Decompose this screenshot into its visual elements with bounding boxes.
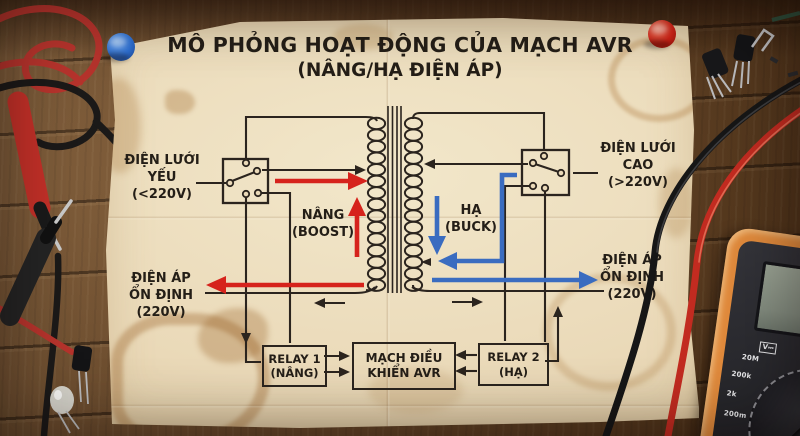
multimeter-body: V⎓ OFF 200m 2k 200k 20M [702,240,800,436]
meter-range-200k: 200k [731,370,752,381]
blue-pushpin [107,33,135,61]
meter-mode-label: V⎓ [759,341,778,354]
meter-range-20M: 20M [741,353,759,363]
multimeter-knob [774,395,800,436]
stain-left-edge [99,78,141,173]
stain-right-mid [659,168,693,238]
multimeter: V⎓ OFF 200m 2k 200k 20M [688,226,800,436]
stain-bottom-center [368,368,463,413]
red-pushpin [648,20,676,48]
paper-sheet [103,18,699,428]
stain-swirl-blob [198,308,268,363]
stain-swirl-bottom-left [111,313,270,436]
paper-crease-bottom [103,404,699,408]
paper-crease-horizontal [103,216,699,220]
components-bottom-left [50,345,93,433]
meter-range-2k: 2k [726,389,737,398]
stain-ring-bottom [543,273,676,391]
meter-range-200m: 200m [723,409,747,420]
stain-top-center [333,24,393,50]
stain-small-flower [165,90,195,114]
workbench-photo: MÔ PHỎNG HOẠT ĐỘNG CỦA MẠCH AVR (NÂNG/HẠ… [0,0,800,436]
paper-crease-vertical [386,18,390,428]
multimeter-lcd [754,261,800,348]
